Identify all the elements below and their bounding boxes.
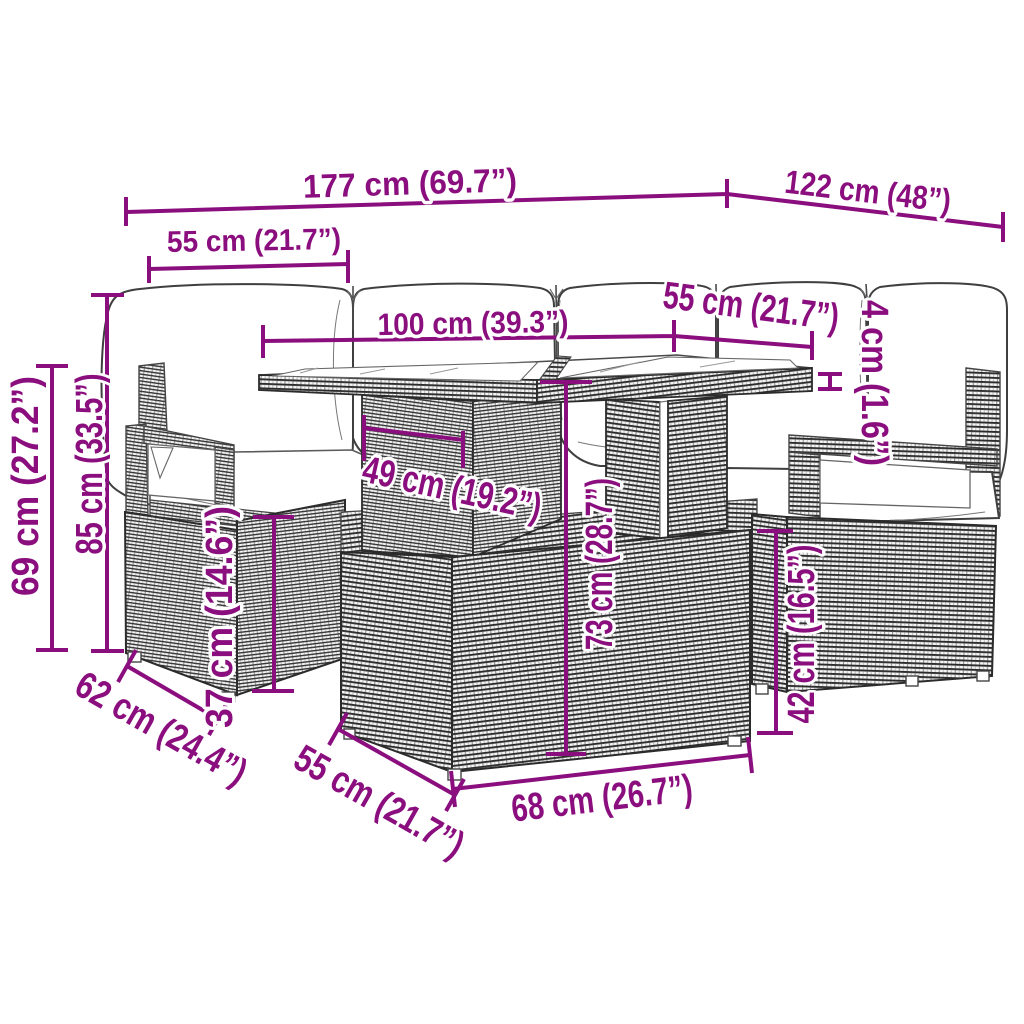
svg-text:177 cm (69.7”): 177 cm (69.7”) [302,161,517,205]
svg-text:37 cm (14.6”): 37 cm (14.6”) [199,506,241,728]
svg-text:42 cm (16.5”): 42 cm (16.5”) [781,545,823,724]
svg-text:4 cm (1.6”): 4 cm (1.6”) [853,300,895,466]
svg-text:73 cm (28.7”): 73 cm (28.7”) [579,478,621,650]
svg-text:100 cm (39.3”): 100 cm (39.3”) [377,304,569,342]
svg-text:85 cm (33.5”): 85 cm (33.5”) [69,374,111,555]
svg-text:55 cm (21.7”): 55 cm (21.7”) [167,223,342,259]
svg-text:69 cm (27.2”): 69 cm (27.2”) [5,376,47,596]
